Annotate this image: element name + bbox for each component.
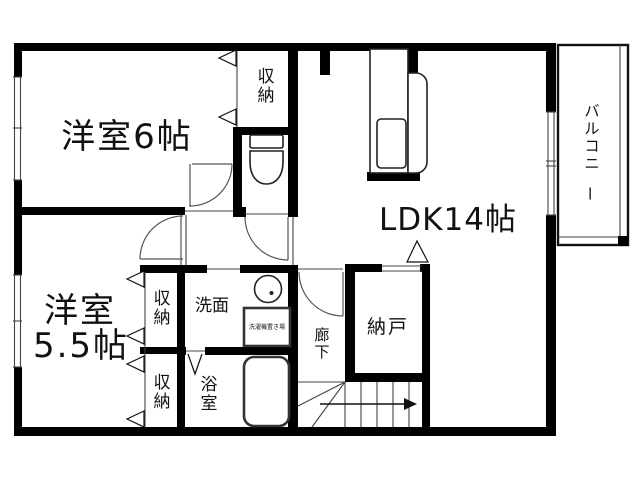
label-washroom: 洗面 — [195, 296, 229, 316]
wall-bottom — [14, 427, 556, 436]
floor-plan: 洋室6帖 LDK14帖 洋室 5.5帖 バルコニー 収納 収納 収納 洗面 洗濯… — [0, 0, 640, 480]
wall-bath-north-left — [177, 347, 186, 355]
label-western-room-55-line1: 洋室 — [44, 291, 116, 331]
door-arc-toilet — [245, 217, 288, 260]
label-western-room-55-line2: 5.5帖 — [33, 326, 129, 366]
wall-nando-west — [345, 264, 355, 382]
door-arc-bedroom55 — [140, 216, 183, 259]
label-closet-bottom: 収納 — [154, 373, 171, 412]
wall-bath-north-right — [205, 347, 288, 355]
label-nando: 納戸 — [367, 316, 409, 338]
window-left-upper — [13, 77, 22, 180]
wall-nando-east — [422, 264, 430, 428]
door-arc-bedroom6 — [190, 164, 232, 207]
bathroom-door-mark — [188, 354, 202, 374]
bathtub-icon — [244, 357, 289, 426]
floor-plan-canvas: 洋室6帖 LDK14帖 洋室 5.5帖 バルコニー 収納 収納 収納 洗面 洗濯… — [0, 0, 640, 480]
closet-top-door-triangles — [219, 50, 236, 125]
wall-kitchen-stub-left — [320, 50, 330, 75]
stairs-direction-arrow — [320, 398, 417, 410]
label-closet-top: 収納 — [258, 67, 275, 106]
label-closet-mid: 収納 — [154, 289, 171, 328]
kitchen-counter — [370, 49, 427, 173]
closet-bottom-door-triangles — [127, 356, 144, 427]
window-right-balcony — [546, 112, 556, 215]
wall-bedroom6-south — [21, 207, 185, 215]
wall-core-east-upper — [288, 43, 298, 217]
wall-nando-south — [345, 373, 430, 382]
toilet-icon — [250, 135, 283, 184]
label-bathroom: 浴室 — [201, 375, 218, 414]
label-western-room-6: 洋室6帖 — [61, 117, 193, 157]
label-hallway: 廊下 — [314, 326, 329, 361]
door-arc-hallway — [299, 272, 343, 316]
wall-closet-col-east — [177, 265, 185, 428]
wall-mid-h-left — [140, 265, 207, 273]
label-washer-space: 洗濯機置き場 — [249, 323, 285, 331]
wall-right — [546, 43, 556, 436]
nando-door-mark — [407, 241, 428, 262]
label-ldk: LDK14帖 — [379, 202, 517, 238]
wall-toilet-left — [233, 127, 242, 217]
window-left-lower — [13, 275, 22, 367]
washbasin-icon — [255, 276, 282, 303]
stairs — [298, 382, 417, 427]
wall-mid-h-right — [240, 265, 298, 273]
closet-mid-door-triangles — [127, 271, 144, 344]
kitchen-sink — [377, 119, 406, 168]
wall-top — [14, 43, 556, 51]
